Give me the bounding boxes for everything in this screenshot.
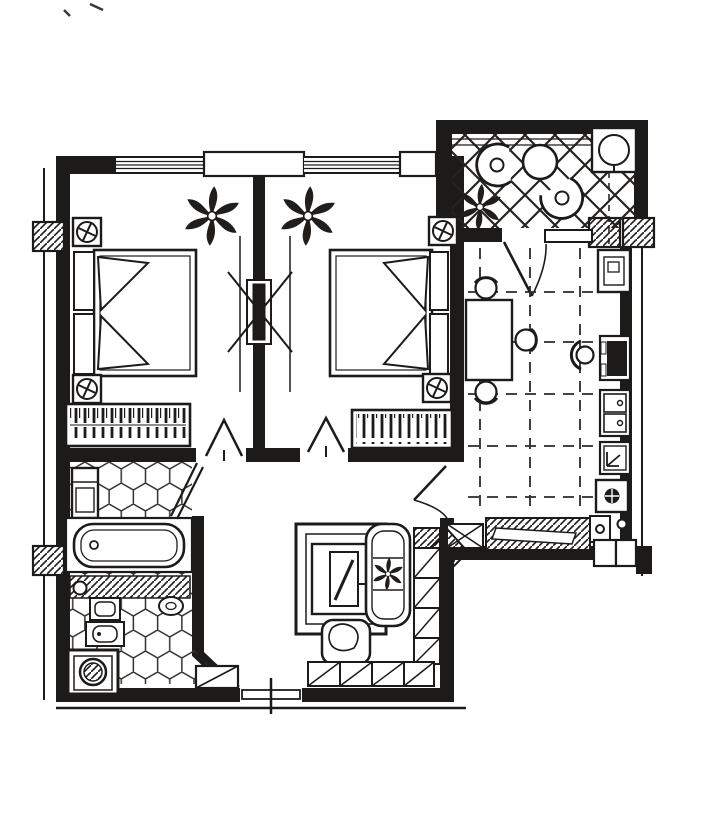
small-fitting [618,520,627,529]
wall-kitchen-top [452,228,502,242]
wardrobe-1 [66,404,190,446]
wardrobe-2 [352,410,452,448]
dining-table [466,300,512,380]
wall-bath-top [56,448,196,462]
floor-plan-drawing [0,0,710,833]
balcony-sill [545,230,592,242]
hatch-block-left-top [33,222,64,251]
wall-living-bottom [302,688,454,702]
kitchen-sink [600,390,630,436]
scanned-floor-plan-page [0,0,710,833]
cooktop-stove [600,336,630,380]
sofa [366,524,410,626]
column-marker [429,217,457,245]
washbasin [90,598,120,620]
washing-machine [68,650,118,694]
bathroom-tall-cabinet [72,468,98,518]
bed-2-headboard [430,252,448,310]
bathtub [66,518,192,572]
toilet [86,622,124,646]
wall-kitchen-corner [636,546,652,574]
wall-partition-cap [246,448,300,462]
hatch-block-left-bottom [33,546,64,575]
balcony-round-table [523,145,557,179]
corner-table-lamp [599,135,629,165]
kitchen-corner-blocks [594,540,636,566]
dishwasher [600,442,630,474]
refrigerator [598,250,630,292]
window-end-block [400,152,436,176]
window-pier [204,152,304,176]
round-hob-appliance [596,480,628,512]
vanity-counter [70,576,190,598]
column-marker [73,218,101,246]
low-cabinet-row [308,662,434,686]
wall-bath-right [192,516,204,656]
pedestal-basin [159,597,183,615]
column-marker [423,374,451,402]
armchair [322,620,370,664]
bed-1-headboard [74,252,94,310]
shoe-cabinet [196,666,238,688]
wall-bed2-bottom [348,448,464,462]
shelving-column [414,528,440,664]
column-marker [73,375,101,403]
